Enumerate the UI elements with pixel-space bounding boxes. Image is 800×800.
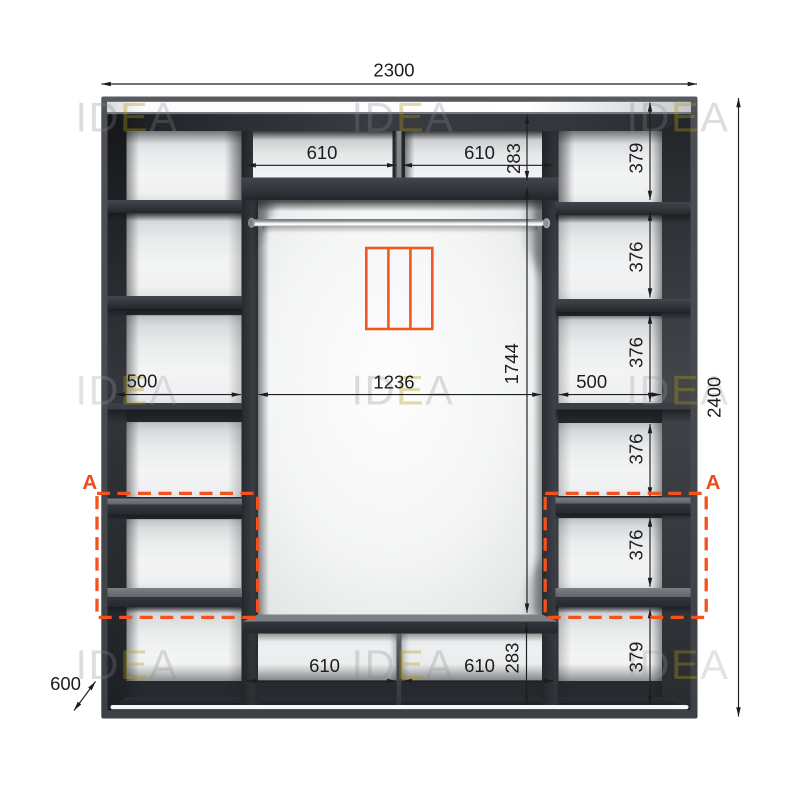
svg-text:A: A [82, 471, 97, 494]
svg-text:376: 376 [626, 242, 647, 273]
svg-text:2400: 2400 [704, 377, 725, 418]
svg-text:IDEA: IDEA [76, 641, 179, 688]
svg-text:1236: 1236 [373, 371, 414, 392]
svg-text:610: 610 [307, 142, 338, 163]
svg-text:376: 376 [626, 337, 647, 368]
svg-text:610: 610 [309, 655, 340, 676]
svg-text:610: 610 [464, 655, 495, 676]
svg-text:A: A [706, 471, 721, 494]
svg-text:600: 600 [50, 673, 81, 694]
svg-text:283: 283 [502, 643, 523, 674]
svg-text:1744: 1744 [501, 343, 522, 384]
svg-text:IDEA: IDEA [627, 94, 730, 141]
svg-text:376: 376 [626, 530, 647, 561]
svg-text:283: 283 [503, 143, 524, 174]
svg-text:IDEA: IDEA [352, 94, 455, 141]
svg-text:376: 376 [626, 434, 647, 465]
svg-text:610: 610 [464, 142, 495, 163]
svg-text:379: 379 [626, 143, 647, 174]
svg-text:379: 379 [626, 642, 647, 673]
svg-text:IDEA: IDEA [76, 94, 179, 141]
svg-text:500: 500 [576, 371, 607, 392]
svg-text:500: 500 [127, 371, 158, 392]
svg-text:2300: 2300 [373, 59, 414, 80]
